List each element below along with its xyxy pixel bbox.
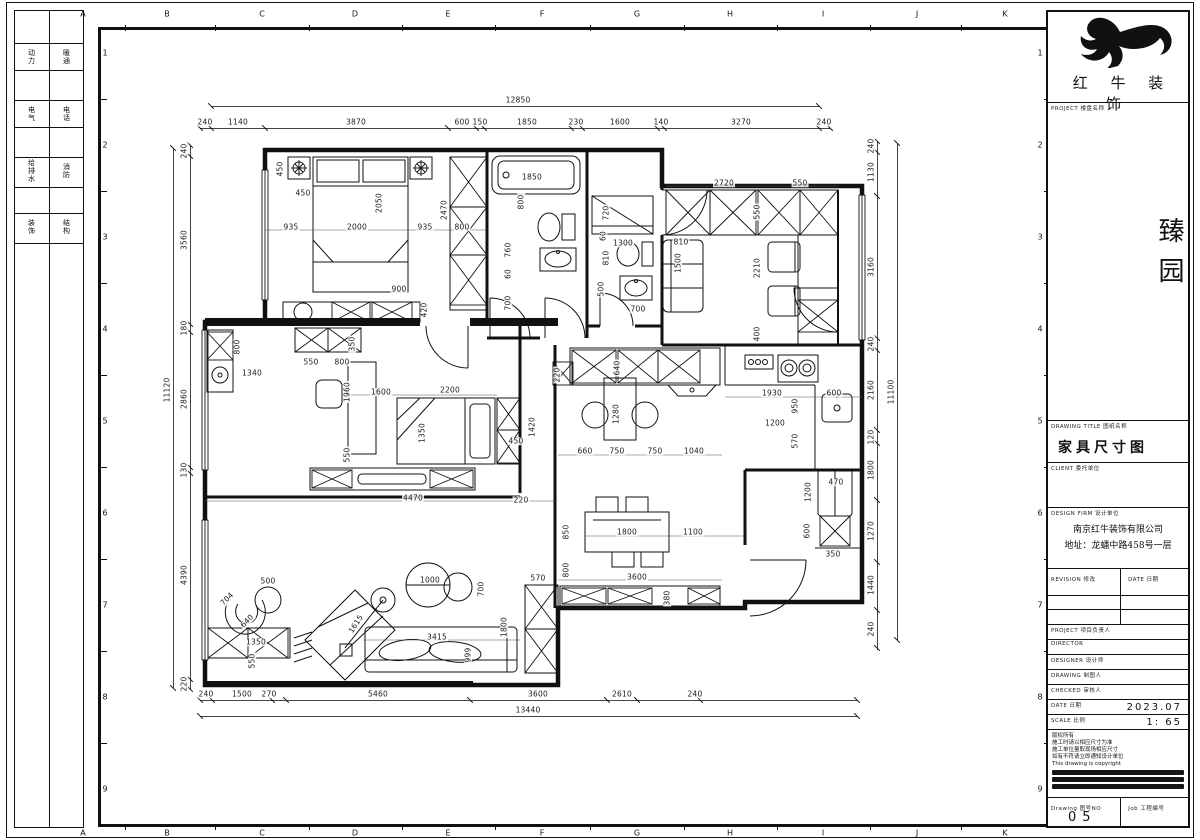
drawing-sheet: 动力暖通电气电话给排水消防装饰结构 AABBCCDDEEFFGGHHIIJJKK… <box>0 0 1200 840</box>
dim-label: 500 <box>597 281 605 298</box>
redacted-text-bar <box>1052 770 1184 775</box>
dim-chain-label: 230 <box>568 118 585 126</box>
cabinet-xbox <box>497 430 520 463</box>
cabinet-xbox <box>800 190 838 235</box>
dim-chain-label: 1800 <box>867 459 875 481</box>
cabinet-xbox <box>666 190 710 235</box>
dim-chain-label: 240 <box>867 621 875 638</box>
dim-chain-label: 1600 <box>609 118 631 126</box>
dim-chain-label: 2160 <box>867 379 875 401</box>
dim-label: 750 <box>647 447 664 455</box>
scale-value: 1: 65 <box>1146 717 1182 728</box>
dim-chain-label: 13440 <box>515 706 542 714</box>
dim-label: 220 <box>553 367 561 384</box>
dim-label: 700 <box>504 295 512 312</box>
cabinet-xbox <box>658 350 700 383</box>
dim-label: 60 <box>504 268 512 280</box>
dim-chain-line <box>173 148 174 688</box>
dim-label: 2000 <box>346 223 368 231</box>
design-firm-label: DESIGN FIRM 设计单位 <box>1048 508 1188 518</box>
role-checked: CHECKED 审核人 <box>1048 685 1188 695</box>
revision-label: REVISION 修改 <box>1048 574 1120 584</box>
dim-chain-label: 4390 <box>180 564 188 586</box>
dim-chain-line <box>877 141 878 650</box>
ceiling-lamp-icon <box>413 160 429 176</box>
dim-label: 1800 <box>500 616 508 638</box>
dim-label: 640 <box>613 360 621 377</box>
dim-chain-line <box>190 145 191 689</box>
floor-plan <box>0 0 1200 840</box>
note-line: 如有不符请立即通知设计单位 <box>1048 754 1188 761</box>
dim-chain-label: 1270 <box>867 520 875 542</box>
drawing-title: 家具尺寸图 <box>1048 431 1188 457</box>
cabinet-xbox <box>525 585 558 629</box>
dim-label: 4470 <box>402 494 424 502</box>
revision-date-label: DATE 日期 <box>1125 574 1162 584</box>
drawing-no-value: 05 <box>1068 810 1097 825</box>
dim-label: 3600 <box>626 573 648 581</box>
dim-chain-label: 1500 <box>231 690 253 698</box>
redacted-text-bar <box>1052 784 1184 789</box>
dim-label: 550 <box>303 358 320 366</box>
dim-chain-line <box>200 700 857 701</box>
dim-chain-label: 5460 <box>367 690 389 698</box>
dim-chain-label: 180 <box>180 320 188 337</box>
dim-chain-label: 240 <box>867 336 875 353</box>
project-name: 臻园 <box>1048 127 1188 387</box>
dim-label: 935 <box>283 223 300 231</box>
company-logo <box>1048 16 1188 68</box>
dim-label: 3415 <box>426 633 448 641</box>
cabinet-xbox <box>572 350 616 383</box>
cabinet-xbox <box>208 628 248 658</box>
cabinet-xbox <box>450 255 487 305</box>
dim-chain-label: 11100 <box>887 379 895 406</box>
dim-label: 1500 <box>674 252 682 274</box>
dim-chain-label: 1440 <box>867 574 875 596</box>
dim-label: 550 <box>343 447 351 464</box>
dim-label: 1850 <box>521 173 543 181</box>
note-line: 版权所有 <box>1048 733 1188 740</box>
dim-label: 1000 <box>419 576 441 584</box>
dim-label: 1200 <box>804 481 812 503</box>
cabinet-xbox <box>207 332 233 360</box>
dim-chain-label: 240 <box>687 690 704 698</box>
dim-chain-label: 12850 <box>505 96 532 104</box>
dim-label: 810 <box>673 238 690 246</box>
dim-chain-label: 140 <box>653 118 670 126</box>
dim-chain-label: 1130 <box>867 161 875 183</box>
dim-label: 999 <box>464 647 472 664</box>
dim-label: 760 <box>504 242 512 259</box>
dim-chain-label: 150 <box>472 118 489 126</box>
notes-section: 版权所有 施工时请以相应尺寸为准 施工单位量取现场相应尺寸 如有不符请立即通知设… <box>1048 729 1188 797</box>
job-no-label: Job 工程编号 <box>1125 803 1167 813</box>
dim-label: 600 <box>826 389 843 397</box>
dim-chain-line <box>200 128 830 129</box>
dim-label: 950 <box>791 398 799 415</box>
dim-label: 850 <box>562 524 570 541</box>
dim-chain-line <box>211 106 819 107</box>
note-line: 施工单位量取现场相应尺寸 <box>1048 747 1188 754</box>
cabinet-xbox <box>562 588 606 604</box>
dim-label: 800 <box>334 358 351 366</box>
note-line: This drawing is copyright <box>1048 761 1188 768</box>
dim-label: 1800 <box>616 528 638 536</box>
dim-label: 800 <box>562 562 570 579</box>
dim-label: 60 <box>599 230 607 242</box>
dim-chain-line <box>200 716 857 717</box>
dim-label: 1930 <box>761 389 783 397</box>
drawing-title-label: DRAWING TITLE 图纸名称 <box>1048 421 1188 431</box>
dim-label: 1300 <box>612 239 634 247</box>
design-firm-name: 南京红牛装饰有限公司 <box>1048 522 1188 535</box>
role-designer: DESIGNER 设计师 <box>1048 655 1188 665</box>
cabinet-xbox <box>608 588 652 604</box>
dim-chain-label: 600 <box>454 118 471 126</box>
dim-label: 900 <box>391 285 408 293</box>
dim-label: 1200 <box>764 419 786 427</box>
dim-chain-label: 11120 <box>163 377 171 404</box>
note-line: 施工时请以相应尺寸为准 <box>1048 740 1188 747</box>
dim-label: 500 <box>260 577 277 585</box>
dim-label: 450 <box>295 189 312 197</box>
dim-label: 380 <box>663 590 671 607</box>
cabinet-xbox <box>618 350 658 383</box>
role-director: DIRECTOR <box>1048 640 1188 648</box>
dim-label: 1600 <box>370 388 392 396</box>
dim-label: 810 <box>602 250 610 267</box>
cabinet-xbox <box>295 328 328 352</box>
dim-chain-label: 1850 <box>516 118 538 126</box>
dim-label: 2200 <box>439 386 461 394</box>
dim-chain-label: 240 <box>197 118 214 126</box>
dim-label: 2050 <box>375 192 383 214</box>
cabinet-xbox <box>450 157 487 207</box>
dim-label: 350 <box>825 550 842 558</box>
dim-label: 800 <box>454 223 471 231</box>
dim-label: 2470 <box>440 199 448 221</box>
dim-label: 550 <box>753 204 761 221</box>
dim-label: 2720 <box>713 179 735 187</box>
client-label: CLIENT 委托单位 <box>1048 463 1188 473</box>
dim-label: 400 <box>753 326 761 343</box>
dim-chain-label: 3270 <box>730 118 752 126</box>
dim-label: 570 <box>791 433 799 450</box>
dim-label: 750 <box>609 447 626 455</box>
dim-label: 1340 <box>241 369 263 377</box>
role-project: PROJECT 项目负责人 <box>1048 625 1188 635</box>
dim-chain-label: 2610 <box>611 690 633 698</box>
dim-label: 570 <box>530 574 547 582</box>
dim-label: 450 <box>276 161 284 178</box>
cabinet-xbox <box>710 190 756 235</box>
dim-label: 1960 <box>343 381 351 403</box>
dim-chain-label: 120 <box>867 429 875 446</box>
dim-label: 1040 <box>683 447 705 455</box>
cabinet-xbox <box>525 629 558 673</box>
dim-label: 2210 <box>753 257 761 279</box>
title-block: 红 牛 装 饰 PROJECT 楼盘名称 臻园 DRAWING TITLE 图纸… <box>1046 10 1190 828</box>
dim-label: 1350 <box>418 422 426 444</box>
ceiling-lamp-icon <box>291 160 307 176</box>
dim-label: 800 <box>517 194 525 211</box>
dim-label: 550 <box>792 179 809 187</box>
cabinet-xbox <box>688 588 720 604</box>
cabinet-xbox <box>430 470 473 488</box>
dim-chain-label: 130 <box>180 462 188 479</box>
dim-label: 700 <box>630 305 647 313</box>
dim-label: 220 <box>513 496 530 504</box>
project-section-label: PROJECT 楼盘名称 <box>1048 103 1108 113</box>
role-drawing: DRAWING 制图人 <box>1048 670 1188 680</box>
dim-label: 1350 <box>245 638 267 646</box>
dim-label: 450 <box>508 437 525 445</box>
dim-label: 720 <box>602 205 610 222</box>
dim-chain-label: 270 <box>261 690 278 698</box>
cabinet-xbox <box>758 190 800 235</box>
dim-label: 1420 <box>528 416 536 438</box>
dim-label: 470 <box>828 478 845 486</box>
redacted-text-bar <box>1052 777 1184 782</box>
date-value: 2023.07 <box>1127 702 1182 713</box>
dim-chain-label: 2860 <box>180 388 188 410</box>
dim-label: 800 <box>233 339 241 356</box>
design-firm-address: 地址：龙蟠中路458号一层 <box>1048 538 1188 551</box>
dim-label: 1100 <box>682 528 704 536</box>
dim-chain-label: 240 <box>180 143 188 160</box>
cabinet-xbox <box>312 470 352 488</box>
dim-label: 350 <box>348 336 356 353</box>
dim-chain-label: 240 <box>198 690 215 698</box>
dim-label: 420 <box>420 302 428 319</box>
dim-label: 600 <box>803 523 811 540</box>
dim-chain-label: 240 <box>867 138 875 155</box>
cabinet-xbox <box>497 398 520 430</box>
dim-chain-label: 3870 <box>345 118 367 126</box>
dim-label: 1280 <box>612 403 620 425</box>
cabinet-xbox <box>820 516 850 546</box>
dim-label: 700 <box>477 581 485 598</box>
dim-chain-label: 3600 <box>527 690 549 698</box>
dim-chain-line <box>897 143 898 640</box>
dim-chain-label: 1140 <box>227 118 249 126</box>
dim-label: 935 <box>417 223 434 231</box>
dim-label: 550 <box>248 653 256 670</box>
dim-chain-label: 240 <box>816 118 833 126</box>
dim-chain-label: 220 <box>180 676 188 693</box>
dim-chain-label: 3560 <box>180 229 188 251</box>
dim-chain-label: 3160 <box>867 256 875 278</box>
dim-label: 660 <box>577 447 594 455</box>
